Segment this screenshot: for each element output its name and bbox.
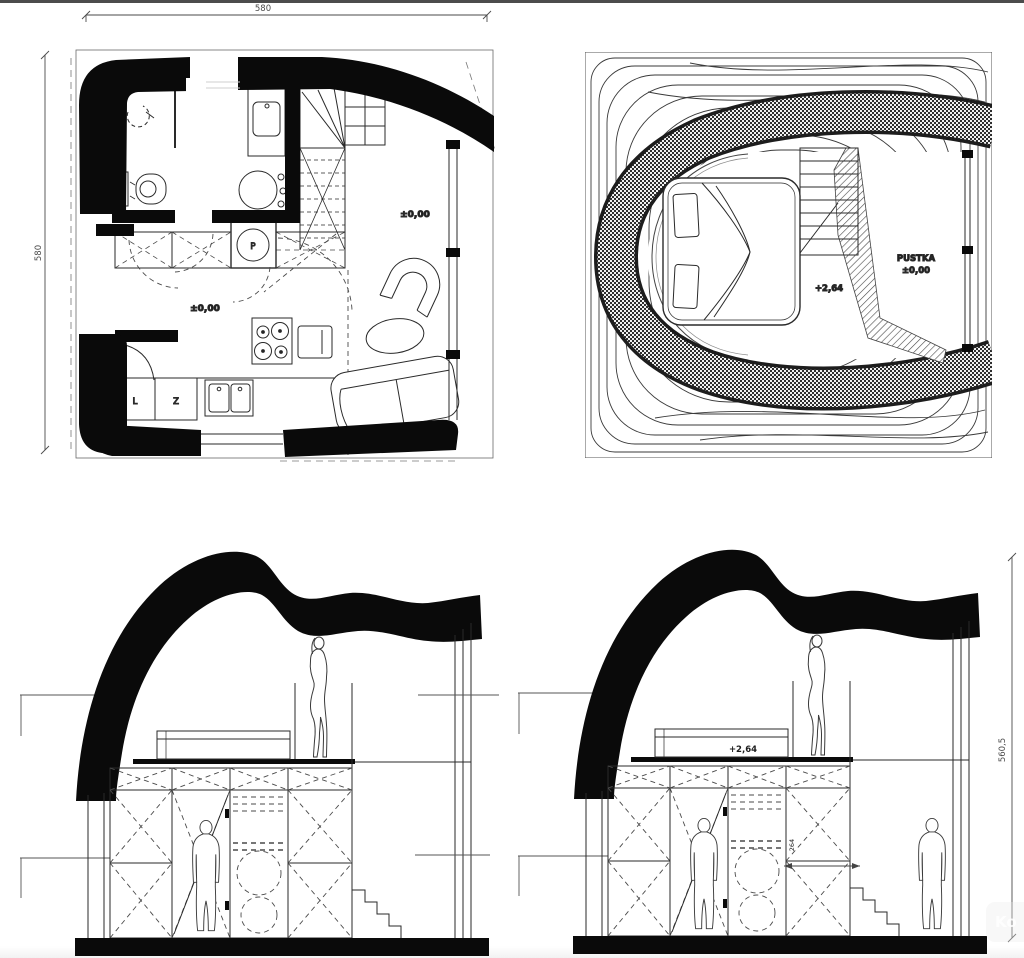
wardrobe-strip <box>115 232 345 268</box>
vanity-sink-icon <box>248 86 285 156</box>
drawing-sheet: ±0,00 ±0,00 P L Z 580 580 <box>0 0 1024 958</box>
level-label-kitchen: ±0,00 <box>190 304 220 314</box>
round-basin-icon <box>239 171 286 209</box>
section-b: +2,64 264 560,5 <box>518 550 1016 954</box>
dimension-top: 580 <box>82 4 491 22</box>
washer-label: P <box>250 242 255 252</box>
armchair-icon <box>380 250 448 317</box>
dimension-overall-height: 560,5 <box>998 553 1016 942</box>
bathroom <box>116 72 286 214</box>
staircase <box>300 88 385 250</box>
level-label-living: ±0,00 <box>400 210 430 220</box>
mezzanine-level-label: +2,64 <box>815 284 843 294</box>
mezzanine-plan: +2,64 PUSTKA ±0,00 <box>585 52 995 458</box>
bed-icon <box>663 178 800 325</box>
ground-floor-plan: ±0,00 ±0,00 P L Z 580 580 <box>34 4 495 461</box>
side-table-icon <box>298 326 332 358</box>
dim-depth-text: 580 <box>34 245 44 261</box>
cabinet-z-label: Z <box>173 397 179 407</box>
room-width-arrow <box>784 863 860 869</box>
section-a <box>20 552 499 956</box>
room-height-dim: 264 <box>788 839 796 851</box>
dim-width-text: 580 <box>255 4 271 14</box>
dimension-left: 580 <box>34 51 49 454</box>
architectural-drawing-canvas: ±0,00 ±0,00 P L Z 580 580 <box>0 0 1024 958</box>
cabinet-l-label: L <box>133 397 138 407</box>
kitchen-sink-icon <box>205 380 253 416</box>
coffee-table-icon <box>364 315 426 357</box>
watermark: Ko <box>986 902 1024 942</box>
watermark-text: Ko <box>995 913 1017 931</box>
void-level-label: ±0,00 <box>902 266 930 276</box>
void-label: PUSTKA <box>897 254 936 264</box>
person-figure <box>919 818 946 928</box>
level-lines-right <box>415 695 499 855</box>
door-bottom <box>201 434 283 444</box>
overall-height-text: 560,5 <box>998 738 1008 762</box>
bottom-fade <box>0 946 1024 958</box>
stove-icon <box>252 318 292 364</box>
section-mezzanine-level: +2,64 <box>729 745 757 755</box>
